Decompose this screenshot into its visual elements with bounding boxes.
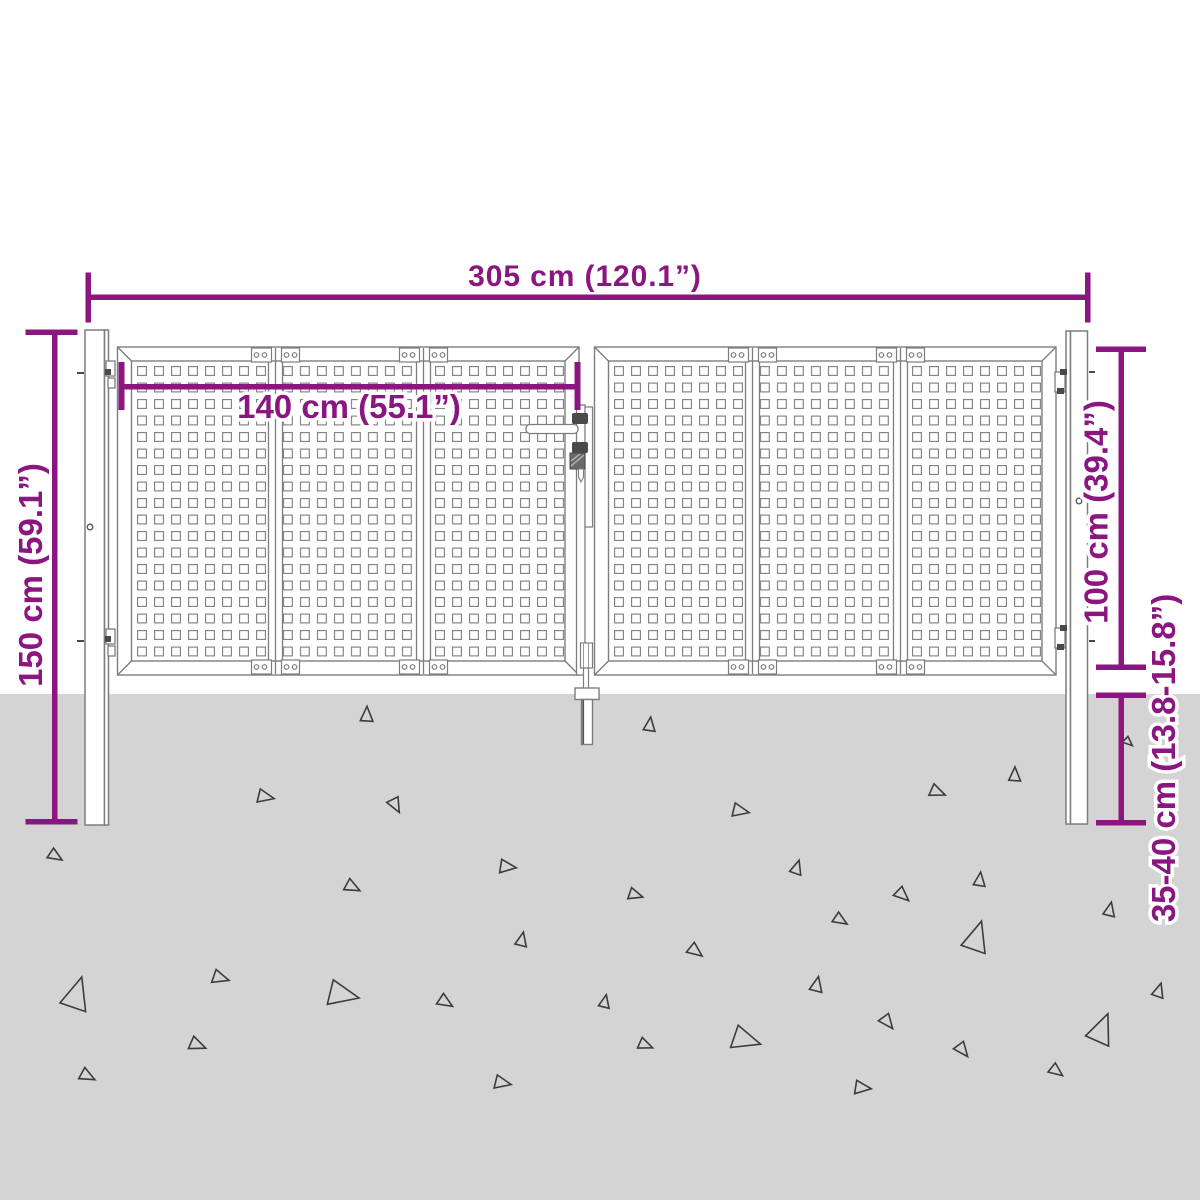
svg-text:140 cm (55.1”): 140 cm (55.1”) <box>237 388 461 425</box>
svg-text:35-40 cm (13.8-15.8”): 35-40 cm (13.8-15.8”) <box>1145 594 1182 922</box>
svg-text:305 cm (120.1”): 305 cm (120.1”) <box>468 260 702 293</box>
svg-text:150 cm (59.1”): 150 cm (59.1”) <box>12 463 49 687</box>
svg-text:100 cm (39.4”): 100 cm (39.4”) <box>1078 400 1115 624</box>
